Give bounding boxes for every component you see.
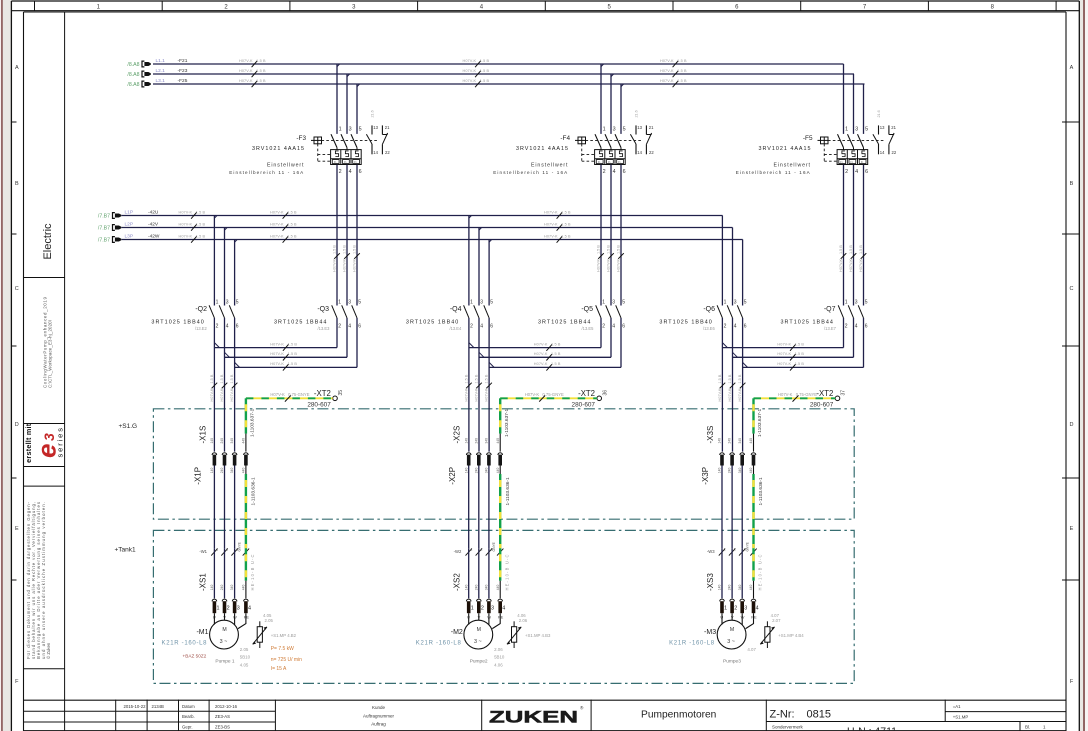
svg-text:440: 440 bbox=[749, 438, 753, 444]
svg-text:H07V-K: H07V-K bbox=[606, 258, 610, 272]
svg-text:E: E bbox=[15, 526, 19, 532]
svg-text:5: 5 bbox=[490, 300, 493, 306]
svg-text:4: 4 bbox=[756, 605, 759, 611]
svg-text:+S1.MP 4.B2: +S1.MP 4.B2 bbox=[271, 633, 297, 638]
svg-text:U-N.: 4711: U-N.: 4711 bbox=[847, 726, 897, 731]
svg-text:-X2S: -X2S bbox=[453, 426, 462, 444]
svg-text:2.07: 2.07 bbox=[772, 618, 781, 623]
svg-text:3: 3 bbox=[491, 605, 494, 611]
svg-text:0815: 0815 bbox=[807, 709, 831, 721]
svg-text:B: B bbox=[1070, 181, 1074, 187]
svg-text:M: M bbox=[730, 627, 734, 633]
svg-text:13: 13 bbox=[637, 125, 642, 130]
svg-text:1-1103.636-1: 1-1103.636-1 bbox=[505, 477, 511, 506]
svg-text:240: 240 bbox=[220, 438, 224, 444]
svg-text:4: 4 bbox=[613, 169, 616, 175]
svg-text:2015-10-22: 2015-10-22 bbox=[124, 704, 147, 709]
svg-text:-Q7: -Q7 bbox=[824, 306, 836, 313]
svg-text:3 ~: 3 ~ bbox=[727, 639, 735, 645]
svg-text:4: 4 bbox=[248, 605, 251, 611]
svg-text:1.5 B: 1.5 B bbox=[480, 59, 490, 63]
svg-text:3: 3 bbox=[613, 126, 616, 132]
svg-text:H07V-K: H07V-K bbox=[332, 258, 336, 272]
svg-text:1.5 B: 1.5 B bbox=[849, 245, 853, 254]
svg-text:-W2: -W2 bbox=[454, 549, 462, 554]
svg-text:280-607: 280-607 bbox=[307, 402, 331, 409]
svg-text:/7.B7: /7.B7 bbox=[98, 237, 110, 243]
svg-text:140: 140 bbox=[718, 438, 722, 444]
svg-text:2: 2 bbox=[481, 605, 484, 611]
svg-text:1.5 B: 1.5 B bbox=[485, 374, 489, 383]
svg-text:H07V-K: H07V-K bbox=[239, 59, 253, 63]
svg-text:-XS3: -XS3 bbox=[706, 573, 715, 591]
svg-text:22: 22 bbox=[892, 150, 897, 155]
svg-text:+S1.MP 4.B4: +S1.MP 4.B4 bbox=[778, 633, 804, 638]
svg-text:4: 4 bbox=[855, 323, 858, 329]
svg-text:/7.B7: /7.B7 bbox=[98, 225, 110, 231]
svg-text:M: M bbox=[477, 627, 481, 633]
svg-text:2.06: 2.06 bbox=[494, 647, 503, 652]
svg-text:3: 3 bbox=[734, 300, 737, 306]
svg-text:2012-10-16: 2012-10-16 bbox=[215, 704, 238, 709]
svg-text:3: 3 bbox=[855, 126, 858, 132]
svg-text:HE-10-B U-C: HE-10-B U-C bbox=[504, 554, 509, 590]
svg-text:L3.1: L3.1 bbox=[156, 78, 166, 84]
svg-text:1: 1 bbox=[339, 126, 342, 132]
svg-text:3RV1021 4AA15: 3RV1021 4AA15 bbox=[759, 146, 811, 152]
svg-text:-M2: -M2 bbox=[451, 629, 463, 636]
svg-text:1.5 B: 1.5 B bbox=[795, 342, 805, 346]
svg-text:3: 3 bbox=[349, 126, 352, 132]
svg-text:3: 3 bbox=[855, 300, 858, 306]
svg-text:5: 5 bbox=[623, 126, 626, 132]
svg-text:H07V-K: H07V-K bbox=[270, 352, 284, 356]
svg-text:5: 5 bbox=[236, 300, 239, 306]
svg-text:2.05: 2.05 bbox=[240, 647, 249, 652]
svg-text:H07V-K: H07V-K bbox=[859, 258, 863, 272]
svg-text:1-1103.636-1: 1-1103.636-1 bbox=[758, 477, 764, 506]
svg-text:280-607: 280-607 bbox=[810, 402, 834, 409]
svg-text:H07V-K: H07V-K bbox=[220, 388, 224, 402]
svg-text:+S1.G: +S1.G bbox=[119, 423, 138, 430]
svg-text:5: 5 bbox=[865, 300, 868, 306]
svg-text:/13.E5: /13.E5 bbox=[582, 326, 595, 331]
svg-text:340: 340 bbox=[738, 468, 742, 474]
svg-text:1: 1 bbox=[470, 300, 473, 306]
svg-text:H07V-K: H07V-K bbox=[270, 342, 284, 346]
svg-text:/13.E7: /13.E7 bbox=[824, 326, 837, 331]
svg-text:H07V-K: H07V-K bbox=[660, 69, 674, 73]
svg-text:21: 21 bbox=[649, 125, 654, 130]
svg-text:13: 13 bbox=[373, 125, 378, 130]
svg-text:3: 3 bbox=[226, 300, 229, 306]
svg-text:D: D bbox=[1070, 422, 1074, 428]
svg-text:340: 340 bbox=[230, 438, 234, 444]
svg-text:240: 240 bbox=[220, 468, 224, 474]
svg-text:H07V-K: H07V-K bbox=[544, 210, 558, 214]
svg-text:H07V-K: H07V-K bbox=[534, 342, 548, 346]
svg-text:4: 4 bbox=[348, 323, 351, 329]
svg-text:-XT2: -XT2 bbox=[314, 389, 331, 398]
svg-text:1.5 B: 1.5 B bbox=[210, 374, 214, 383]
svg-text:4: 4 bbox=[349, 169, 352, 175]
svg-text:14: 14 bbox=[880, 150, 885, 155]
svg-text:H07V-K: H07V-K bbox=[270, 234, 284, 238]
svg-text:H07V-K: H07V-K bbox=[463, 59, 477, 63]
svg-text:H07V-K: H07V-K bbox=[179, 210, 193, 214]
svg-text:H07V-K: H07V-K bbox=[270, 392, 285, 397]
svg-text:2: 2 bbox=[338, 323, 341, 329]
svg-text:n= 725 U/ min: n= 725 U/ min bbox=[271, 657, 302, 663]
svg-text:2: 2 bbox=[734, 548, 736, 552]
svg-text:2: 2 bbox=[216, 323, 219, 329]
svg-text:Einstellbereich 11 - 16A: Einstellbereich 11 - 16A bbox=[736, 170, 811, 175]
svg-text:H07V-K: H07V-K bbox=[463, 79, 477, 83]
svg-text:3: 3 bbox=[744, 605, 747, 611]
svg-text:-Q6: -Q6 bbox=[703, 306, 715, 313]
svg-text:2: 2 bbox=[470, 323, 473, 329]
svg-text:37: 37 bbox=[841, 390, 847, 396]
svg-text:440: 440 bbox=[749, 468, 753, 474]
svg-text:240: 240 bbox=[220, 585, 224, 591]
svg-text:440: 440 bbox=[242, 585, 246, 591]
svg-text:1.5 B: 1.5 B bbox=[551, 352, 561, 356]
svg-text:0.75-GNYE: 0.75-GNYE bbox=[796, 392, 818, 397]
svg-text:2: 2 bbox=[226, 548, 228, 552]
svg-text:H07V-K: H07V-K bbox=[525, 392, 540, 397]
svg-text:1.5 B: 1.5 B bbox=[677, 59, 687, 63]
svg-text:140: 140 bbox=[464, 468, 468, 474]
svg-text:440: 440 bbox=[496, 438, 500, 444]
svg-text:1: 1 bbox=[724, 300, 727, 306]
svg-text:6: 6 bbox=[236, 323, 239, 329]
svg-text:I>: I> bbox=[618, 160, 621, 164]
svg-text:21.6: 21.6 bbox=[634, 110, 638, 117]
svg-text:H07V-K: H07V-K bbox=[544, 222, 558, 226]
svg-text:-F25: -F25 bbox=[178, 78, 188, 84]
svg-text:I>: I> bbox=[851, 160, 854, 164]
svg-text:5: 5 bbox=[359, 126, 362, 132]
svg-text:-42W: -42W bbox=[148, 234, 160, 240]
svg-text:-Q2: -Q2 bbox=[195, 306, 207, 313]
svg-text:1: 1 bbox=[216, 300, 219, 306]
svg-text:Pumpe 1: Pumpe 1 bbox=[215, 658, 235, 664]
svg-text:36: 36 bbox=[602, 390, 608, 396]
svg-text:H07V-K: H07V-K bbox=[463, 69, 477, 73]
svg-text:3: 3 bbox=[348, 300, 351, 306]
svg-text:I>: I> bbox=[334, 160, 337, 164]
svg-text:Kunde: Kunde bbox=[372, 705, 386, 710]
svg-text:1: 1 bbox=[471, 548, 473, 552]
svg-text:1.5 B: 1.5 B bbox=[256, 79, 266, 83]
svg-text:6: 6 bbox=[622, 323, 625, 329]
svg-text:-M1: -M1 bbox=[196, 629, 208, 636]
svg-text:H07V-K: H07V-K bbox=[352, 258, 356, 272]
svg-text:Bearb.: Bearb. bbox=[182, 714, 195, 719]
svg-text:H07V-K: H07V-K bbox=[270, 210, 284, 214]
svg-text:+Tank1: +Tank1 bbox=[115, 547, 137, 554]
svg-text:-F3: -F3 bbox=[296, 135, 306, 142]
svg-text:1.5 B: 1.5 B bbox=[480, 69, 490, 73]
svg-text:440: 440 bbox=[242, 438, 246, 444]
svg-text:6: 6 bbox=[359, 169, 362, 175]
svg-text:Z-Nr:: Z-Nr: bbox=[770, 709, 795, 721]
svg-text:-XT2: -XT2 bbox=[816, 389, 833, 398]
svg-text:H07V-K: H07V-K bbox=[660, 79, 674, 83]
svg-text:/13.E4: /13.E4 bbox=[449, 326, 462, 331]
svg-text:I>: I> bbox=[861, 160, 864, 164]
svg-text:4.05: 4.05 bbox=[240, 662, 249, 667]
svg-text:-42V: -42V bbox=[148, 222, 159, 228]
svg-text:H07V-K: H07V-K bbox=[718, 388, 722, 402]
svg-text:I>: I> bbox=[344, 160, 347, 164]
svg-text:1.5 B: 1.5 B bbox=[728, 374, 732, 383]
svg-text:C:\CTL_Workspace_E3-hj_2020\: C:\CTL_Workspace_E3-hj_2020\ bbox=[48, 319, 53, 388]
svg-text:14: 14 bbox=[373, 150, 378, 155]
svg-text:1.5 B: 1.5 B bbox=[718, 374, 722, 383]
svg-text:-W1: -W1 bbox=[199, 549, 207, 554]
svg-text:/8.A8: /8.A8 bbox=[127, 62, 139, 68]
svg-text:2: 2 bbox=[845, 169, 848, 175]
svg-text:-W3: -W3 bbox=[707, 549, 715, 554]
svg-text:Gepr.: Gepr. bbox=[182, 724, 193, 729]
svg-text:3: 3 bbox=[237, 605, 240, 611]
svg-text:H07V-K: H07V-K bbox=[210, 388, 214, 402]
svg-text:1.5 B: 1.5 B bbox=[606, 245, 610, 254]
svg-text:K21R -160-L8: K21R -160-L8 bbox=[162, 640, 208, 646]
svg-text:L2P: L2P bbox=[125, 222, 134, 228]
svg-text:H07V-K: H07V-K bbox=[474, 388, 478, 402]
svg-text:Einstellwert: Einstellwert bbox=[774, 163, 811, 169]
svg-text:6: 6 bbox=[490, 323, 493, 329]
svg-text:1.5 B: 1.5 B bbox=[616, 245, 620, 254]
svg-text:440: 440 bbox=[496, 468, 500, 474]
svg-text:1: 1 bbox=[724, 548, 726, 552]
svg-text:1: 1 bbox=[602, 300, 605, 306]
svg-text:Pumpenmotoren: Pumpenmotoren bbox=[641, 710, 716, 721]
svg-text:1.5 B: 1.5 B bbox=[196, 210, 206, 214]
svg-text:I>: I> bbox=[598, 160, 601, 164]
svg-text:Auftragnummer: Auftragnummer bbox=[363, 713, 395, 718]
svg-text:H07V-K: H07V-K bbox=[728, 388, 732, 402]
svg-text:1.5 B: 1.5 B bbox=[342, 245, 346, 254]
svg-text:340: 340 bbox=[485, 468, 489, 474]
svg-text:H07V-K: H07V-K bbox=[534, 352, 548, 356]
svg-text:H07V-K: H07V-K bbox=[485, 388, 489, 402]
svg-text:1.5 B: 1.5 B bbox=[287, 210, 297, 214]
svg-text:/13.E3: /13.E3 bbox=[318, 326, 331, 331]
svg-text:H07V-K: H07V-K bbox=[738, 388, 742, 402]
svg-text:GNYE: GNYE bbox=[745, 541, 749, 551]
svg-text:-Q5: -Q5 bbox=[581, 306, 593, 313]
svg-text:Auftrag: Auftrag bbox=[371, 721, 386, 726]
svg-text:240: 240 bbox=[474, 468, 478, 474]
svg-text:L1P: L1P bbox=[125, 210, 134, 216]
svg-text:1.5 B: 1.5 B bbox=[551, 342, 561, 346]
svg-text:1-1103.636-1: 1-1103.636-1 bbox=[251, 477, 257, 506]
svg-text:Pumpe3: Pumpe3 bbox=[723, 658, 741, 664]
svg-text:H07V-K: H07V-K bbox=[270, 362, 284, 366]
svg-text:1-1103.637-1: 1-1103.637-1 bbox=[250, 408, 256, 437]
svg-text:H07V-K: H07V-K bbox=[239, 69, 253, 73]
svg-text:1.5 B: 1.5 B bbox=[288, 352, 298, 356]
svg-text:GNYE: GNYE bbox=[492, 541, 496, 551]
svg-text:-42U: -42U bbox=[148, 210, 159, 216]
svg-text:D: D bbox=[15, 422, 19, 428]
svg-text:I>: I> bbox=[608, 160, 611, 164]
svg-text:2: 2 bbox=[724, 323, 727, 329]
svg-text:H07V-K: H07V-K bbox=[839, 258, 843, 272]
svg-text:2134B: 2134B bbox=[152, 704, 165, 709]
svg-text:-X2P: -X2P bbox=[448, 467, 457, 485]
svg-text:/7.B7: /7.B7 bbox=[98, 213, 110, 219]
svg-text:1.5 B: 1.5 B bbox=[230, 374, 234, 383]
svg-text:Sondervermerk: Sondervermerk bbox=[772, 724, 804, 729]
svg-text:Einstellwert: Einstellwert bbox=[267, 163, 304, 169]
svg-text:22: 22 bbox=[385, 150, 390, 155]
svg-text:-X3P: -X3P bbox=[701, 467, 710, 485]
svg-text:-X3S: -X3S bbox=[706, 426, 715, 444]
svg-text:Bl.: Bl. bbox=[1025, 724, 1030, 729]
svg-text:-Q3: -Q3 bbox=[317, 306, 329, 313]
svg-text:H07V-K: H07V-K bbox=[544, 234, 558, 238]
svg-text:C: C bbox=[15, 286, 19, 292]
svg-text:14: 14 bbox=[637, 150, 642, 155]
svg-text:1.5 B: 1.5 B bbox=[839, 245, 843, 254]
svg-text:H07V-K: H07V-K bbox=[239, 79, 253, 83]
svg-text:1: 1 bbox=[603, 126, 606, 132]
svg-text:35: 35 bbox=[338, 390, 344, 396]
svg-text:1.5 B: 1.5 B bbox=[795, 352, 805, 356]
svg-text:1.5 B: 1.5 B bbox=[795, 362, 805, 366]
svg-text:340: 340 bbox=[230, 585, 234, 591]
svg-text:P= 7.5 kW: P= 7.5 kW bbox=[271, 646, 294, 652]
svg-text:A: A bbox=[1070, 65, 1074, 71]
svg-text:13: 13 bbox=[880, 125, 885, 130]
svg-text:1: 1 bbox=[217, 605, 220, 611]
svg-text:3: 3 bbox=[612, 300, 615, 306]
svg-text:4: 4 bbox=[502, 605, 505, 611]
svg-text:340: 340 bbox=[738, 438, 742, 444]
svg-text:/13.E2: /13.E2 bbox=[195, 326, 208, 331]
svg-text:21: 21 bbox=[891, 125, 896, 130]
svg-text:1: 1 bbox=[216, 548, 218, 552]
svg-text:H07V-K: H07V-K bbox=[616, 258, 620, 272]
svg-text:1.5 B: 1.5 B bbox=[596, 245, 600, 254]
svg-text:21.6: 21.6 bbox=[877, 110, 881, 117]
svg-text:1.5 B: 1.5 B bbox=[196, 234, 206, 238]
svg-text:+S1.MP: +S1.MP bbox=[953, 715, 969, 720]
svg-text:4: 4 bbox=[734, 323, 737, 329]
svg-text:1-1103.637-1: 1-1103.637-1 bbox=[757, 408, 763, 437]
svg-text:1.5 B: 1.5 B bbox=[677, 69, 687, 73]
svg-text:HE-10-B U-C: HE-10-B U-C bbox=[250, 554, 255, 590]
svg-text:H07V-K: H07V-K bbox=[778, 392, 793, 397]
svg-text:2: 2 bbox=[845, 323, 848, 329]
svg-text:1.5 B: 1.5 B bbox=[561, 234, 571, 238]
svg-text:+BAZ 50Z2: +BAZ 50Z2 bbox=[183, 654, 207, 659]
svg-text:0.75-GNYE: 0.75-GNYE bbox=[542, 392, 564, 397]
svg-text:4.06: 4.06 bbox=[494, 662, 503, 667]
svg-text:PE: PE bbox=[751, 615, 757, 620]
svg-text:GNYE: GNYE bbox=[238, 541, 242, 551]
svg-text:-X1S: -X1S bbox=[198, 426, 207, 444]
svg-text:340: 340 bbox=[485, 438, 489, 444]
svg-text:22: 22 bbox=[649, 150, 654, 155]
svg-text:H07V-K: H07V-K bbox=[660, 59, 674, 63]
svg-text:6: 6 bbox=[623, 169, 626, 175]
svg-text:L3P: L3P bbox=[125, 234, 134, 240]
svg-text:ZE3-BS: ZE3-BS bbox=[215, 724, 230, 729]
svg-text:1: 1 bbox=[471, 605, 474, 611]
svg-text:HE-10-B U-C: HE-10-B U-C bbox=[758, 554, 763, 590]
svg-text:2: 2 bbox=[603, 169, 606, 175]
svg-text:PE: PE bbox=[498, 615, 504, 620]
svg-text:+S1.MP 4.B3: +S1.MP 4.B3 bbox=[525, 633, 551, 638]
svg-text:1.5 B: 1.5 B bbox=[256, 69, 266, 73]
svg-text:240: 240 bbox=[728, 438, 732, 444]
svg-text:5: 5 bbox=[622, 300, 625, 306]
svg-text:5: 5 bbox=[865, 126, 868, 132]
svg-text:4: 4 bbox=[612, 323, 615, 329]
svg-text:K21R -160-L8: K21R -160-L8 bbox=[416, 640, 462, 646]
svg-text:H07V-K: H07V-K bbox=[342, 258, 346, 272]
svg-text:1.5 B: 1.5 B bbox=[480, 79, 490, 83]
svg-text:-Q4: -Q4 bbox=[450, 306, 462, 313]
svg-text:H07V-K: H07V-K bbox=[777, 352, 791, 356]
svg-text:440: 440 bbox=[749, 585, 753, 591]
svg-text:0.75-GNYE: 0.75-GNYE bbox=[288, 392, 310, 397]
svg-text:3 ~: 3 ~ bbox=[474, 639, 482, 645]
svg-text:4: 4 bbox=[855, 169, 858, 175]
svg-text:1.5 B: 1.5 B bbox=[287, 222, 297, 226]
svg-text:1.5 B: 1.5 B bbox=[288, 342, 298, 346]
svg-text:H07V-K: H07V-K bbox=[179, 222, 193, 226]
svg-text:140: 140 bbox=[464, 438, 468, 444]
svg-text:/13.E6: /13.E6 bbox=[703, 326, 716, 331]
svg-text:I>: I> bbox=[354, 160, 357, 164]
svg-text:=A1: =A1 bbox=[953, 704, 961, 709]
svg-text:1.5 B: 1.5 B bbox=[352, 245, 356, 254]
svg-text:1.5 B: 1.5 B bbox=[256, 59, 266, 63]
svg-text:E: E bbox=[1070, 526, 1074, 532]
svg-text:1.5 B: 1.5 B bbox=[859, 245, 863, 254]
svg-text:5: 5 bbox=[744, 300, 747, 306]
svg-text:5B10: 5B10 bbox=[240, 655, 251, 660]
svg-text:-XS2: -XS2 bbox=[453, 573, 462, 591]
svg-text:3: 3 bbox=[480, 300, 483, 306]
svg-text:-F4: -F4 bbox=[560, 135, 570, 142]
svg-text:280-607: 280-607 bbox=[572, 402, 596, 409]
svg-text:H07V-K: H07V-K bbox=[464, 388, 468, 402]
svg-text:2.05: 2.05 bbox=[265, 618, 274, 623]
svg-text:-XS1: -XS1 bbox=[198, 573, 207, 591]
svg-text:Einstellwert: Einstellwert bbox=[531, 163, 568, 169]
svg-text:5: 5 bbox=[358, 300, 361, 306]
svg-text:Einstellbereich 11 - 16A: Einstellbereich 11 - 16A bbox=[229, 170, 304, 175]
svg-text:5B10: 5B10 bbox=[494, 655, 505, 660]
svg-text:und ohne unsere ausdrückliche: und ohne unsere ausdrückliche Zustimmung… bbox=[41, 502, 46, 659]
svg-text:6: 6 bbox=[744, 323, 747, 329]
svg-text:1.5 B: 1.5 B bbox=[220, 374, 224, 383]
svg-text:A: A bbox=[15, 65, 19, 71]
svg-text:21: 21 bbox=[385, 125, 390, 130]
svg-text:3RV1021 4AA15: 3RV1021 4AA15 bbox=[252, 146, 304, 152]
svg-text:140: 140 bbox=[210, 468, 214, 474]
svg-text:Pumpe2: Pumpe2 bbox=[470, 658, 488, 664]
svg-text:1: 1 bbox=[338, 300, 341, 306]
svg-text:140: 140 bbox=[210, 585, 214, 591]
